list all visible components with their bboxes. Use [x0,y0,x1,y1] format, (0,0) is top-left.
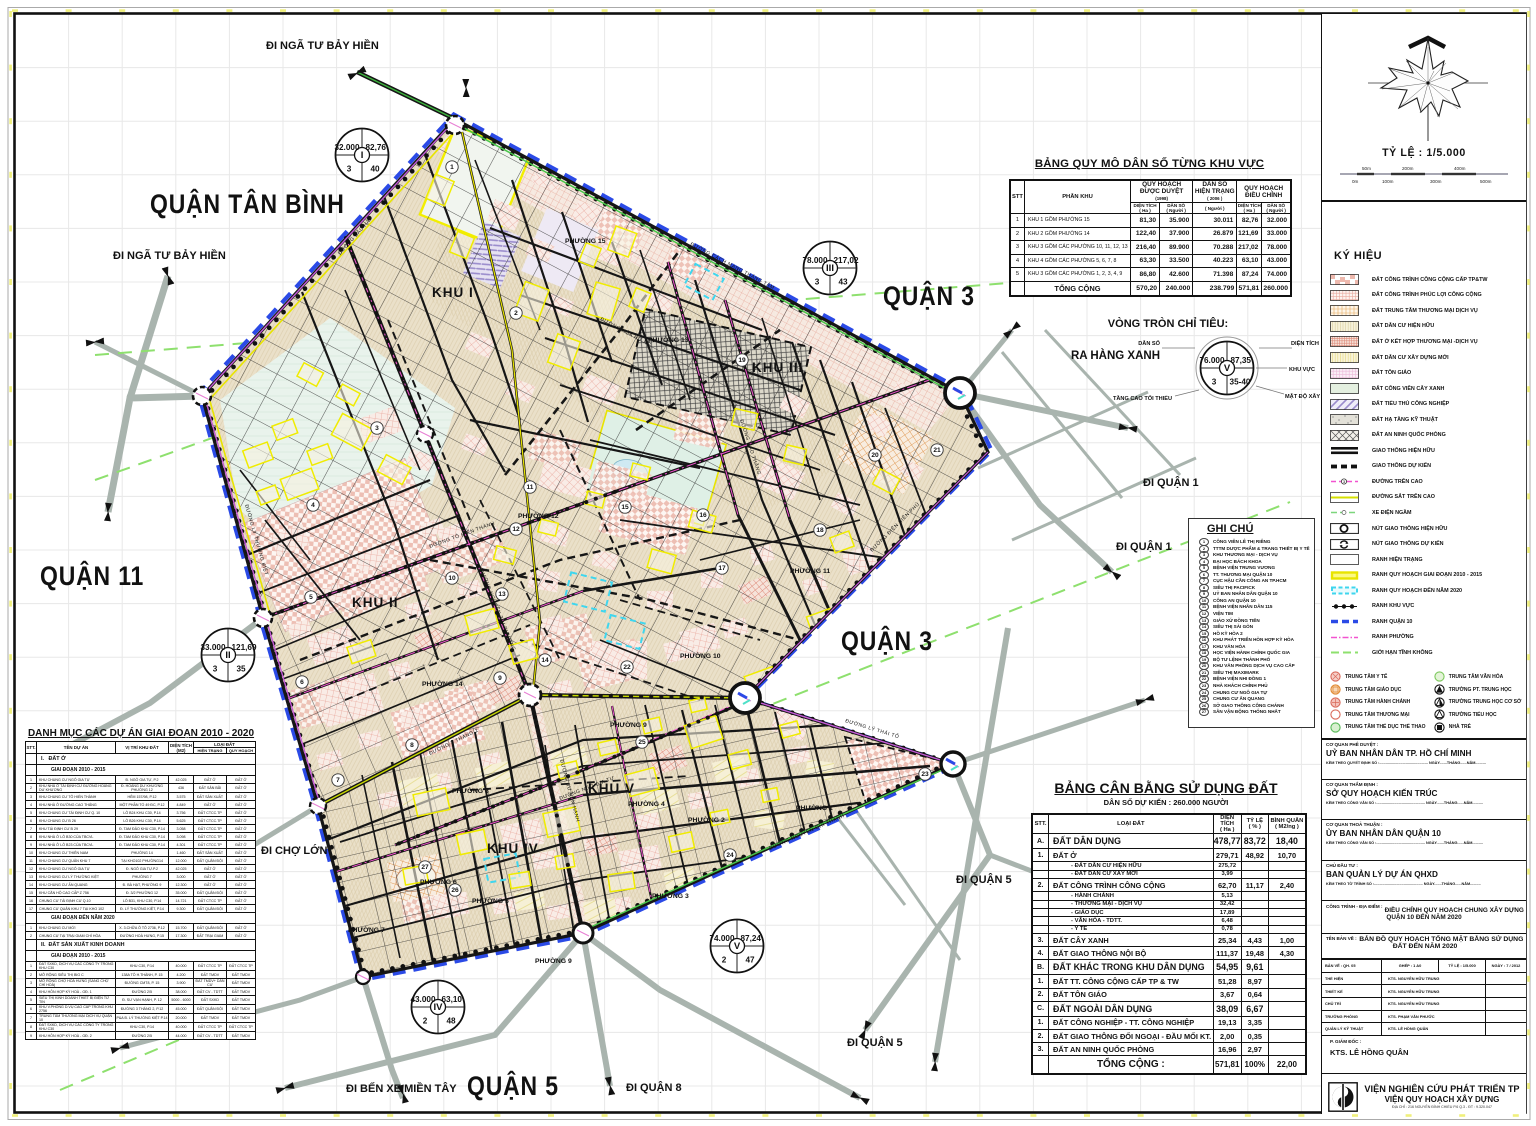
svg-text:23: 23 [921,771,929,778]
svg-text:10: 10 [448,575,456,582]
svg-text:300m: 300m [1430,179,1442,184]
svg-text:KHU III: KHU III [752,360,803,375]
svg-text:26: 26 [451,887,459,894]
svg-text:0m: 0m [1352,179,1359,184]
svg-text:7: 7 [336,777,340,784]
svg-text:48: 48 [446,1017,456,1026]
svg-text:40: 40 [370,165,380,174]
svg-text:3: 3 [815,278,820,287]
svg-text:PHƯỜNG 10: PHƯỜNG 10 [680,651,721,660]
svg-text:13: 13 [498,591,506,598]
svg-text:500m: 500m [1480,179,1492,184]
svg-text:16: 16 [699,512,707,519]
svg-text:74.000: 74.000 [709,934,734,943]
svg-text:87,35: 87,35 [1231,356,1252,365]
svg-text:KHU II: KHU II [352,595,399,610]
svg-text:2: 2 [722,956,727,965]
svg-text:50m: 50m [1362,166,1371,171]
svg-text:82,76: 82,76 [366,143,387,152]
svg-text:17: 17 [718,565,726,572]
svg-text:DIỆN TÍCH: DIỆN TÍCH [1291,339,1319,347]
svg-text:43.000: 43.000 [410,995,435,1004]
svg-text:4: 4 [311,502,315,509]
svg-text:KHU I: KHU I [432,285,474,300]
svg-text:PHƯỜNG 5: PHƯỜNG 5 [472,896,509,905]
svg-text:121,69: 121,69 [232,643,257,652]
svg-text:TỶ LỆ : 1/5.000: TỶ LỆ : 1/5.000 [1382,146,1466,159]
svg-text:5: 5 [309,594,313,601]
svg-text:TẦNG CAO TỐI THIỂU: TẦNG CAO TỐI THIỂU [1113,395,1172,402]
svg-text:VÒNG TRÒN CHỈ TIÊU:: VÒNG TRÒN CHỈ TIÊU: [1108,317,1228,330]
svg-text:200m: 200m [1402,166,1414,171]
svg-text:87,24: 87,24 [741,934,762,943]
svg-text:43: 43 [838,278,848,287]
svg-text:DÂN SỐ: DÂN SỐ [1138,340,1160,347]
svg-text:9: 9 [498,675,502,682]
svg-text:KHU IV: KHU IV [487,841,539,856]
svg-text:2: 2 [514,310,518,317]
svg-text:PHƯỜNG 14: PHƯỜNG 14 [422,679,463,688]
svg-text:PHƯỜNG 2: PHƯỜNG 2 [688,815,725,824]
svg-text:47: 47 [745,956,755,965]
svg-text:1: 1 [450,164,454,171]
svg-text:PHƯỜNG 11: PHƯỜNG 11 [790,566,830,575]
svg-text:217,02: 217,02 [834,256,859,265]
svg-text:24: 24 [726,852,734,859]
svg-text:15: 15 [621,504,629,511]
svg-text:PHƯỜNG 4: PHƯỜNG 4 [628,799,665,808]
svg-text:18: 18 [816,527,824,534]
svg-text:25: 25 [638,739,646,746]
svg-text:11: 11 [527,484,534,491]
svg-text:PHƯỜNG 3: PHƯỜNG 3 [652,891,689,900]
svg-text:21: 21 [933,447,941,454]
svg-text:78.000: 78.000 [802,256,827,265]
svg-text:PHƯỜNG 12: PHƯỜNG 12 [518,511,559,520]
svg-text:20: 20 [871,452,879,459]
svg-text:33.000: 33.000 [200,643,225,652]
svg-text:22: 22 [623,664,631,671]
svg-text:63,10: 63,10 [442,995,463,1004]
svg-text:PHƯỜNG 13: PHƯỜNG 13 [648,335,689,344]
svg-text:PHƯỜNG 1: PHƯỜNG 1 [796,803,833,812]
svg-text:400m: 400m [1454,166,1466,171]
svg-text:2: 2 [423,1017,428,1026]
svg-text:12: 12 [512,526,520,533]
svg-text:3: 3 [1212,378,1217,387]
svg-text:3: 3 [213,665,218,674]
svg-text:35: 35 [236,665,246,674]
svg-text:PHƯỜNG 9: PHƯỜNG 9 [610,720,647,729]
svg-text:19: 19 [738,357,746,364]
svg-text:27: 27 [421,864,429,871]
svg-text:6: 6 [300,679,304,686]
svg-text:76.000: 76.000 [1199,356,1224,365]
svg-text:3: 3 [375,425,379,432]
svg-text:32.000: 32.000 [334,143,359,152]
svg-text:PHƯỜNG 15: PHƯỜNG 15 [565,236,606,245]
svg-text:3: 3 [347,165,352,174]
svg-text:I: I [361,150,364,161]
svg-text:II: II [225,650,230,661]
svg-text:35-40: 35-40 [1230,378,1251,387]
svg-text:PHƯỜNG 9: PHƯỜNG 9 [535,956,572,965]
svg-text:8: 8 [410,742,414,749]
svg-text:100m: 100m [1382,179,1394,184]
svg-text:PHƯỜNG 7: PHƯỜNG 7 [348,925,385,934]
svg-text:KHU VỰC: KHU VỰC [1289,367,1315,373]
svg-text:PHƯỜNG 8: PHƯỜNG 8 [452,786,489,795]
svg-text:14: 14 [541,657,549,664]
